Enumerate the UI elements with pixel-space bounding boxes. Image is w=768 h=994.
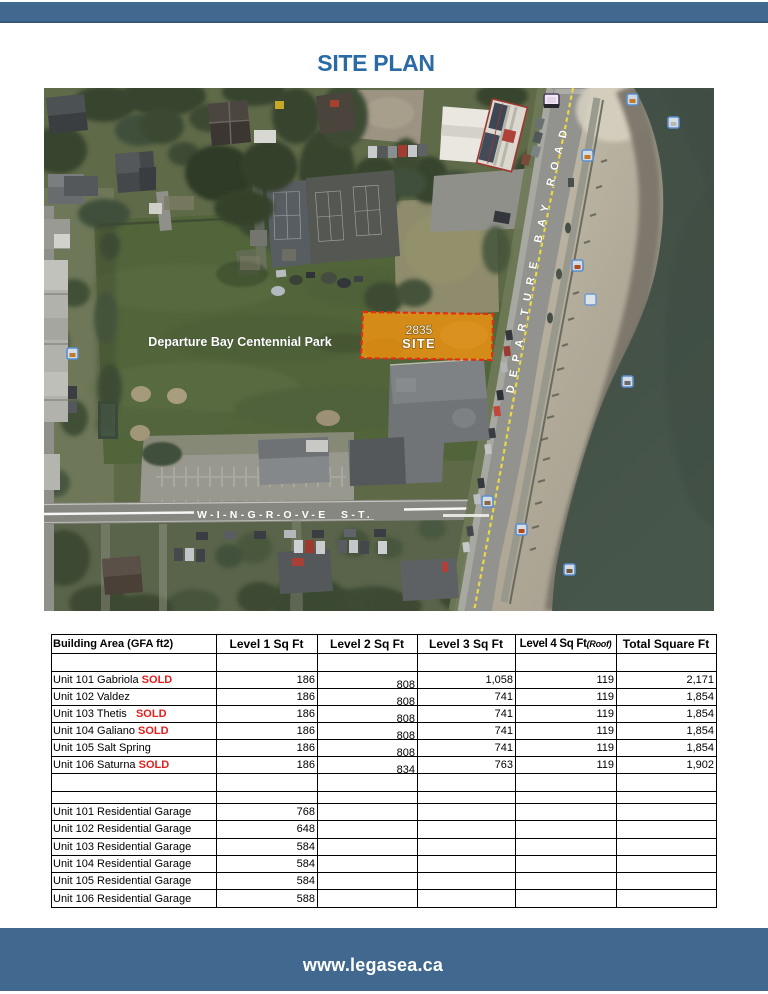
svg-text:2835: 2835 — [406, 323, 433, 337]
svg-text:SITE: SITE — [402, 336, 436, 351]
svg-text:Departure Bay Centennial Park: Departure Bay Centennial Park — [148, 335, 331, 349]
svg-text:W-I-N-G-R-O-V-E S-T.: W-I-N-G-R-O-V-E S-T. — [197, 509, 373, 521]
